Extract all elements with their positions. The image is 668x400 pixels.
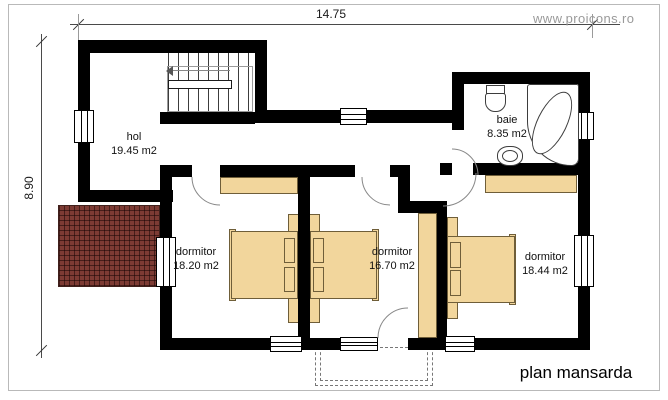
room-area: 19.45 m2	[111, 145, 157, 157]
room-label-dormitor-1: dormitor 18.20 m2	[173, 245, 219, 273]
dimension-width-label: 14.75	[316, 7, 346, 21]
dimension-height-label: 8.90	[22, 176, 36, 199]
room-area: 16.70 m2	[369, 260, 415, 272]
door-arc	[378, 308, 408, 338]
plan-title: plan mansarda	[520, 363, 632, 383]
room-name: dormitor	[525, 251, 565, 263]
floor-plan: hol 19.45 m2 baie 8.35 m2 dormitor 18.20…	[0, 0, 668, 400]
room-label-dormitor-2: dormitor 16.70 m2	[369, 245, 415, 273]
door-arc	[192, 177, 220, 205]
room-name: dormitor	[176, 246, 216, 258]
dimension-line-vertical	[41, 34, 42, 358]
watermark: www.proicons.ro	[533, 11, 634, 26]
door-arc	[452, 149, 478, 175]
toilet-icon	[485, 93, 506, 112]
sink-basin	[502, 150, 518, 162]
room-label-dormitor-3: dormitor 18.44 m2	[522, 250, 568, 278]
room-name: dormitor	[372, 246, 412, 258]
extension-line	[78, 14, 79, 40]
door-arcs	[0, 0, 668, 400]
room-area: 18.44 m2	[522, 265, 568, 277]
room-label-hol: hol 19.45 m2	[111, 130, 157, 158]
door-arc	[362, 177, 390, 205]
door-arc	[443, 173, 476, 206]
room-area: 8.35 m2	[487, 128, 527, 140]
room-name: hol	[127, 131, 142, 143]
room-label-baie: baie 8.35 m2	[487, 113, 527, 141]
room-name: baie	[497, 114, 518, 126]
room-area: 18.20 m2	[173, 260, 219, 272]
